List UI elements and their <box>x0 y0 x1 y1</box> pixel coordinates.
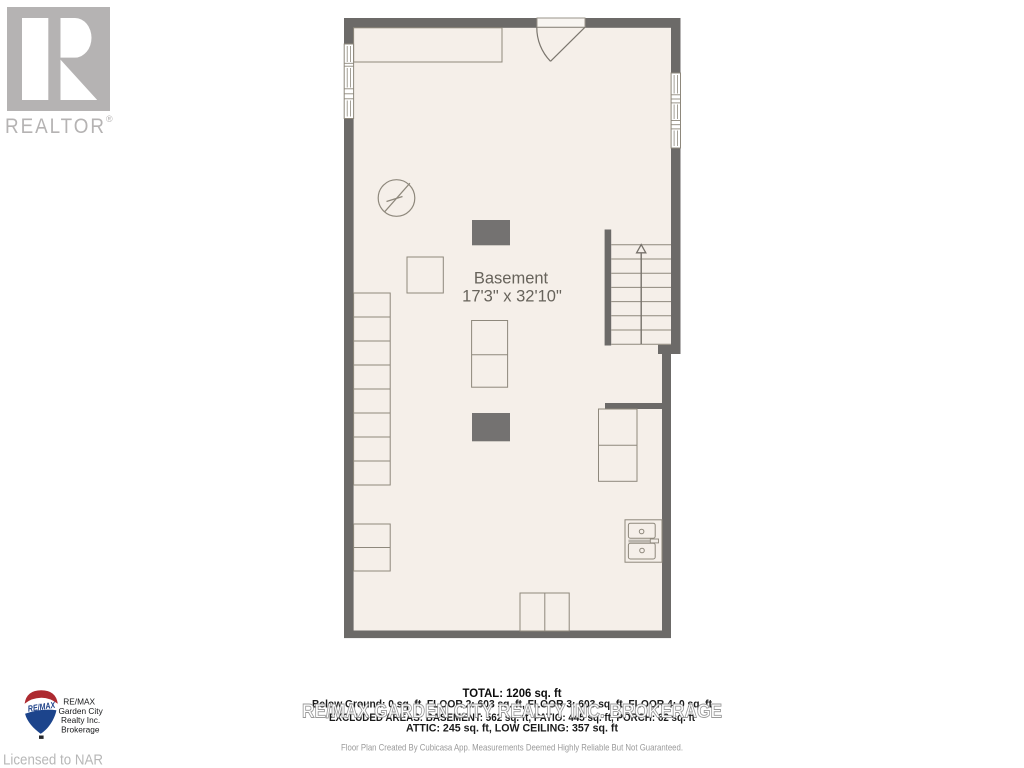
svg-text:Basement: Basement <box>474 270 549 288</box>
svg-text:Floor Plan Created By Cubicasa: Floor Plan Created By Cubicasa App. Meas… <box>341 743 683 753</box>
svg-text:Licensed to NAR: Licensed to NAR <box>3 752 103 768</box>
svg-text:®: ® <box>106 114 113 124</box>
svg-text:RE/MAX GARDEN CITY REALTY INC.: RE/MAX GARDEN CITY REALTY INC. BROKERAGE <box>302 701 722 723</box>
svg-text:ATTIC: 245 sq. ft, LOW CEILING: ATTIC: 245 sq. ft, LOW CEILING: 357 sq. … <box>406 723 618 735</box>
svg-text:17'3" x 32'10": 17'3" x 32'10" <box>462 288 562 306</box>
svg-text:REALTOR: REALTOR <box>5 115 106 138</box>
svg-text:Brokerage: Brokerage <box>61 725 100 735</box>
